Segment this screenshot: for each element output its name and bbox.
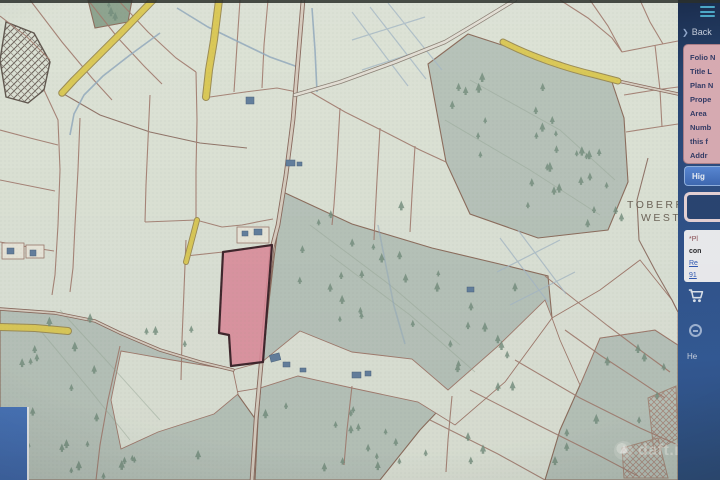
back-button[interactable]: ❯Back [682,27,712,37]
map-canvas[interactable] [0,0,720,480]
folio-info-panel: Folio N Title L Plan N Prope Area Numb t… [683,44,720,164]
folio-field: Addr [690,149,720,163]
screen-photo: TOBERRO WEST daft.ie ❯Back Folio N Title… [0,0,720,480]
blue-corner-panel [0,407,29,480]
note-link[interactable]: 91 [689,270,720,282]
folio-field: Title L [690,65,720,79]
hamburger-menu-icon[interactable] [700,4,715,20]
note-line: con [689,246,720,258]
cart-icon[interactable] [688,288,705,309]
folio-field: Plan N [690,79,720,93]
note-line: *Pl [689,234,720,246]
folio-field: Numb [690,121,720,135]
folio-field: Area [690,107,720,121]
folio-field: Folio N [690,51,720,65]
back-label: Back [692,27,712,37]
daft-logo-icon [614,441,633,460]
chevron-right-icon: ❯ [682,28,689,37]
photo-edge [0,0,720,3]
highlight-button[interactable]: Hig [684,166,720,186]
folio-field: this f [690,135,720,149]
folio-field: Prope [690,93,720,107]
round-badge-icon[interactable] [689,324,702,337]
secondary-panel[interactable] [684,192,720,222]
note-link[interactable]: Re [689,258,720,270]
dot-texture [0,0,720,480]
sidebar: ❯Back Folio N Title L Plan N Prope Area … [678,0,720,480]
help-label[interactable]: He [687,352,697,361]
note-panel: *Pl con Re 91 [684,230,720,282]
